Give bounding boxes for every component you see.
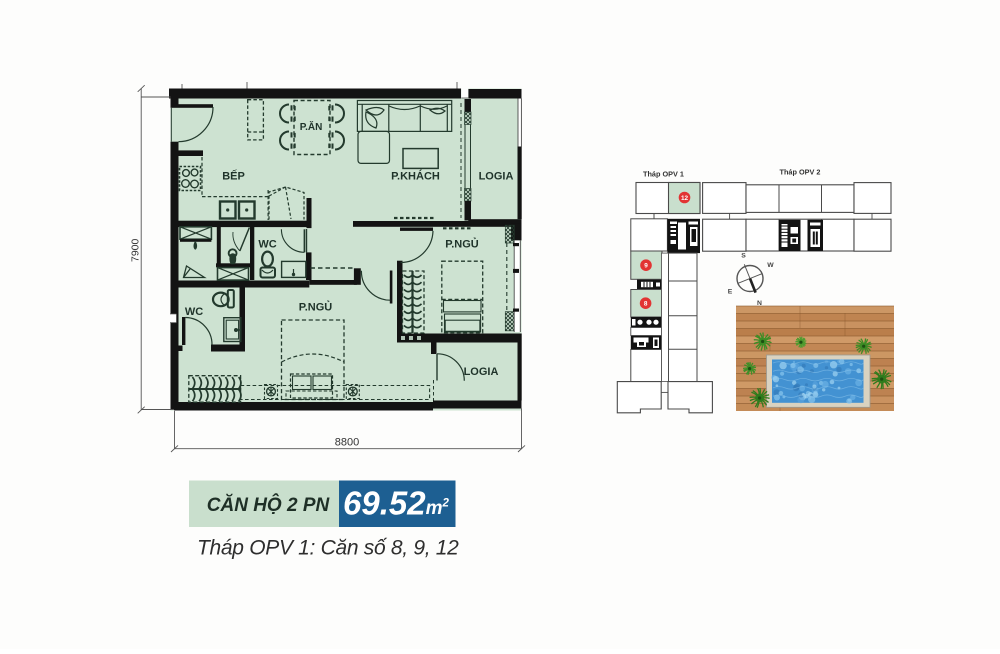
svg-text:P.NGỦ: P.NGỦ xyxy=(445,238,478,251)
svg-text:LOGIA: LOGIA xyxy=(464,366,499,378)
svg-text:P.NGỦ: P.NGỦ xyxy=(299,301,332,314)
svg-text:WC: WC xyxy=(185,306,203,318)
svg-text:P.KHÁCH: P.KHÁCH xyxy=(391,170,440,183)
svg-text:WC: WC xyxy=(258,239,276,251)
svg-text:9: 9 xyxy=(644,263,648,270)
svg-text:Tháp OPV 1: Căn số 8, 9, 12: Tháp OPV 1: Căn số 8, 9, 12 xyxy=(197,537,459,560)
svg-text:7900: 7900 xyxy=(130,238,142,262)
svg-text:E: E xyxy=(728,289,733,296)
svg-text:8800: 8800 xyxy=(335,437,359,449)
svg-text:8: 8 xyxy=(644,301,648,308)
svg-text:Tháp OPV 1: Tháp OPV 1 xyxy=(643,170,684,179)
svg-text:12: 12 xyxy=(681,195,689,202)
svg-text:BẾP: BẾP xyxy=(222,170,245,183)
svg-text:P.ĂN: P.ĂN xyxy=(300,120,323,133)
svg-text:LOGIA: LOGIA xyxy=(479,171,514,183)
svg-text:CĂN HỘ 2 PN: CĂN HỘ 2 PN xyxy=(207,494,331,516)
svg-text:S: S xyxy=(741,253,746,260)
svg-text:W: W xyxy=(767,262,774,269)
svg-text:Tháp OPV 2: Tháp OPV 2 xyxy=(780,168,821,177)
